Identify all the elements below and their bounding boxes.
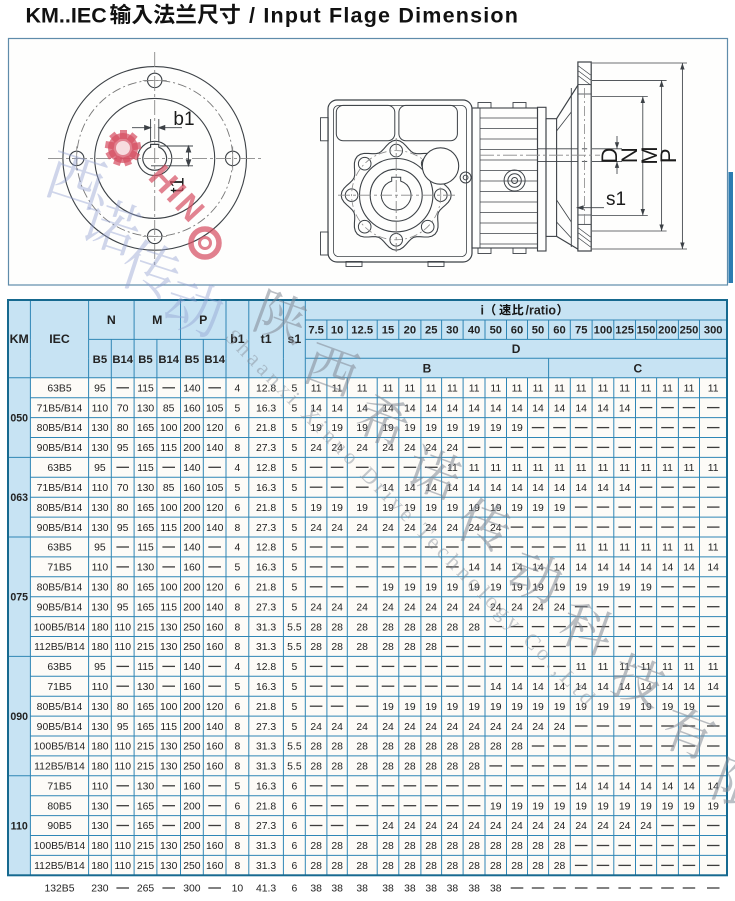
svg-text:6: 6	[292, 821, 298, 832]
svg-text:19: 19	[310, 503, 322, 514]
svg-text:11: 11	[684, 383, 695, 394]
svg-text:24: 24	[554, 722, 566, 733]
svg-text:112B5/B14: 112B5/B14	[34, 861, 85, 872]
svg-text:28: 28	[447, 861, 459, 872]
svg-text:24: 24	[447, 443, 459, 454]
svg-text:100: 100	[594, 325, 613, 337]
svg-text:31.3: 31.3	[256, 841, 276, 852]
svg-text:24: 24	[447, 722, 459, 733]
svg-text:110: 110	[114, 762, 131, 773]
svg-text:24: 24	[597, 821, 609, 832]
svg-text:28: 28	[310, 742, 322, 753]
svg-text:B5: B5	[138, 354, 152, 366]
svg-text:38: 38	[490, 884, 502, 895]
svg-text:140: 140	[183, 662, 201, 673]
svg-text:105: 105	[206, 403, 224, 414]
svg-text:19: 19	[425, 583, 437, 594]
svg-text:14: 14	[683, 782, 695, 793]
svg-text:11: 11	[708, 463, 719, 474]
svg-text:60: 60	[553, 325, 565, 337]
svg-text:24: 24	[356, 602, 368, 613]
svg-text:4: 4	[235, 383, 241, 394]
svg-text:130: 130	[160, 762, 178, 773]
svg-text:5: 5	[235, 682, 241, 693]
svg-text:115: 115	[160, 443, 177, 454]
svg-text:5: 5	[292, 722, 298, 733]
svg-text:14: 14	[640, 563, 652, 574]
svg-text:100B5/B14: 100B5/B14	[34, 622, 86, 633]
svg-text:19: 19	[511, 503, 523, 514]
svg-text:6: 6	[292, 884, 298, 895]
svg-text:11: 11	[469, 463, 480, 474]
svg-text:5: 5	[292, 463, 298, 474]
svg-text:6: 6	[235, 801, 241, 812]
svg-text:12.8: 12.8	[256, 543, 276, 554]
svg-text:71B5/B14: 71B5/B14	[37, 483, 83, 494]
svg-text:15: 15	[382, 325, 394, 337]
svg-text:19: 19	[382, 583, 394, 594]
svg-text:24: 24	[382, 523, 394, 534]
svg-text:D: D	[512, 342, 521, 356]
svg-text:115: 115	[137, 383, 154, 394]
svg-text:4: 4	[235, 543, 241, 554]
svg-text:115: 115	[137, 543, 154, 554]
svg-text:28: 28	[356, 861, 368, 872]
svg-text:19: 19	[511, 702, 523, 713]
svg-text:24: 24	[532, 821, 544, 832]
svg-text:120: 120	[206, 583, 224, 594]
svg-text:19: 19	[597, 801, 609, 812]
svg-text:14: 14	[707, 563, 719, 574]
svg-text:14: 14	[597, 563, 609, 574]
svg-text:8: 8	[235, 861, 241, 872]
svg-text:11: 11	[708, 383, 719, 394]
svg-text:28: 28	[468, 762, 480, 773]
svg-text:12.8: 12.8	[256, 662, 276, 673]
svg-text:14: 14	[575, 403, 587, 414]
svg-text:130: 130	[91, 503, 109, 514]
svg-text:38: 38	[310, 884, 322, 895]
svg-text:28: 28	[532, 841, 544, 852]
svg-text:11: 11	[469, 383, 480, 394]
svg-text:24: 24	[511, 821, 523, 832]
svg-text:11: 11	[619, 383, 630, 394]
svg-text:28: 28	[310, 861, 322, 872]
svg-text:300: 300	[704, 325, 723, 337]
svg-text:5: 5	[292, 443, 298, 454]
svg-text:12.5: 12.5	[351, 325, 373, 337]
svg-text:19: 19	[447, 503, 459, 514]
svg-text:IEC: IEC	[49, 332, 70, 346]
svg-text:11: 11	[662, 662, 673, 673]
svg-text:6: 6	[235, 583, 241, 594]
svg-text:14: 14	[511, 682, 523, 693]
svg-text:14: 14	[331, 403, 343, 414]
svg-text:165: 165	[137, 702, 155, 713]
svg-text:19: 19	[425, 702, 437, 713]
svg-text:165: 165	[137, 583, 155, 594]
svg-text:19: 19	[447, 423, 459, 434]
svg-text:215: 215	[137, 762, 155, 773]
svg-text:31.3: 31.3	[256, 642, 276, 653]
svg-text:80: 80	[117, 423, 129, 434]
svg-text:24: 24	[640, 821, 652, 832]
svg-text:130: 130	[91, 443, 109, 454]
svg-text:19: 19	[683, 801, 695, 812]
svg-text:8: 8	[235, 642, 241, 653]
svg-text:19: 19	[619, 702, 631, 713]
svg-text:27.3: 27.3	[256, 523, 276, 534]
svg-text:130: 130	[91, 602, 109, 613]
svg-text:24: 24	[425, 722, 437, 733]
svg-text:14: 14	[490, 483, 502, 494]
svg-text:14: 14	[468, 483, 480, 494]
svg-text:100B5/B14: 100B5/B14	[34, 742, 86, 753]
svg-text:130: 130	[160, 861, 178, 872]
svg-text:28: 28	[425, 742, 437, 753]
svg-text:14: 14	[640, 782, 652, 793]
svg-text:KM: KM	[10, 332, 29, 346]
svg-text:19: 19	[619, 801, 631, 812]
svg-text:200: 200	[183, 821, 201, 832]
svg-text:5.5: 5.5	[287, 642, 302, 653]
svg-text:6: 6	[235, 503, 241, 514]
svg-text:110: 110	[114, 742, 131, 753]
svg-text:8: 8	[235, 722, 241, 733]
svg-text:28: 28	[356, 742, 368, 753]
svg-text:11: 11	[684, 463, 695, 474]
svg-text:14: 14	[619, 403, 631, 414]
svg-text:215: 215	[137, 861, 155, 872]
svg-text:24: 24	[425, 602, 437, 613]
svg-text:63B5: 63B5	[47, 662, 71, 673]
svg-text:160: 160	[206, 861, 224, 872]
svg-text:11: 11	[426, 383, 437, 394]
svg-text:11: 11	[598, 463, 609, 474]
svg-text:215: 215	[137, 642, 155, 653]
svg-text:8: 8	[235, 523, 241, 534]
svg-text:38: 38	[382, 884, 394, 895]
svg-text:28: 28	[404, 841, 416, 852]
svg-text:71B5: 71B5	[47, 682, 71, 693]
svg-text:28: 28	[490, 841, 502, 852]
svg-text:28: 28	[532, 861, 544, 872]
svg-text:12.8: 12.8	[256, 463, 276, 474]
svg-text:28: 28	[310, 622, 322, 633]
svg-text:14: 14	[532, 483, 544, 494]
svg-text:14: 14	[490, 682, 502, 693]
svg-text:24: 24	[447, 523, 459, 534]
svg-text:19: 19	[662, 801, 674, 812]
svg-text:B14: B14	[112, 354, 133, 366]
svg-text:s1: s1	[606, 189, 626, 210]
svg-text:19: 19	[575, 583, 587, 594]
svg-text:40: 40	[468, 325, 480, 337]
svg-text:24: 24	[404, 821, 416, 832]
svg-text:19: 19	[707, 801, 719, 812]
svg-text:90B5/B14: 90B5/B14	[37, 722, 83, 733]
svg-text:120: 120	[206, 423, 224, 434]
svg-text:28: 28	[404, 861, 416, 872]
svg-text:6: 6	[235, 423, 241, 434]
svg-text:112B5/B14: 112B5/B14	[34, 762, 85, 773]
svg-text:11: 11	[662, 543, 673, 554]
svg-text:165: 165	[137, 523, 155, 534]
svg-text:28: 28	[331, 642, 343, 653]
svg-text:11: 11	[708, 662, 719, 673]
svg-text:28: 28	[356, 642, 368, 653]
svg-text:100: 100	[160, 423, 178, 434]
svg-text:100B5/B14: 100B5/B14	[34, 841, 86, 852]
svg-text:31.3: 31.3	[256, 622, 276, 633]
svg-text:28: 28	[382, 762, 394, 773]
svg-text:28: 28	[404, 762, 416, 773]
svg-text:140: 140	[206, 523, 224, 534]
svg-text:180: 180	[91, 622, 109, 633]
svg-text:160: 160	[183, 563, 201, 574]
svg-text:24: 24	[331, 602, 343, 613]
svg-text:28: 28	[447, 742, 459, 753]
svg-text:165: 165	[137, 602, 155, 613]
svg-text:14: 14	[575, 563, 587, 574]
svg-text:14: 14	[662, 682, 674, 693]
svg-text:11: 11	[447, 383, 458, 394]
svg-text:27.3: 27.3	[256, 722, 276, 733]
svg-text:160: 160	[206, 642, 224, 653]
svg-text:24: 24	[404, 443, 416, 454]
svg-text:105: 105	[206, 483, 224, 494]
svg-text:115: 115	[160, 602, 177, 613]
svg-text:38: 38	[447, 884, 459, 895]
svg-text:14: 14	[511, 403, 523, 414]
svg-text:19: 19	[554, 503, 566, 514]
svg-text:28: 28	[468, 742, 480, 753]
svg-text:19: 19	[532, 503, 544, 514]
svg-text:19: 19	[468, 423, 480, 434]
svg-text:19: 19	[425, 503, 437, 514]
svg-text:11: 11	[533, 383, 544, 394]
svg-text:160: 160	[206, 762, 224, 773]
svg-text:11: 11	[554, 383, 565, 394]
svg-text:165: 165	[137, 503, 155, 514]
svg-text:N: N	[107, 313, 116, 327]
svg-text:14: 14	[662, 782, 674, 793]
svg-text:160: 160	[183, 782, 201, 793]
svg-text:21.8: 21.8	[256, 503, 276, 514]
svg-text:38: 38	[331, 884, 343, 895]
svg-text:140: 140	[183, 383, 201, 394]
svg-text:8: 8	[235, 742, 241, 753]
svg-text:24: 24	[575, 821, 587, 832]
svg-text:24: 24	[382, 821, 394, 832]
svg-text:b1: b1	[173, 109, 194, 130]
svg-text:14: 14	[619, 483, 631, 494]
svg-text:8: 8	[235, 821, 241, 832]
svg-text:24: 24	[382, 602, 394, 613]
svg-text:11: 11	[598, 543, 609, 554]
svg-text:11: 11	[641, 543, 652, 554]
svg-text:27.3: 27.3	[256, 821, 276, 832]
svg-text:4: 4	[235, 463, 241, 474]
svg-text:28: 28	[310, 841, 322, 852]
svg-text:28: 28	[404, 742, 416, 753]
svg-text:11: 11	[684, 662, 695, 673]
svg-text:165: 165	[137, 801, 155, 812]
svg-text:115: 115	[137, 463, 154, 474]
svg-text:M: M	[152, 313, 162, 327]
svg-text:28: 28	[310, 762, 322, 773]
svg-text:24: 24	[331, 722, 343, 733]
svg-text:28: 28	[331, 762, 343, 773]
svg-text:38: 38	[404, 884, 416, 895]
svg-text:28: 28	[425, 841, 437, 852]
svg-text:24: 24	[468, 722, 480, 733]
svg-text:70: 70	[117, 403, 129, 414]
svg-text:28: 28	[331, 622, 343, 633]
svg-text:P: P	[656, 148, 681, 163]
svg-text:28: 28	[310, 642, 322, 653]
svg-text:63B5: 63B5	[47, 383, 71, 394]
svg-text:5: 5	[292, 523, 298, 534]
svg-text:5.5: 5.5	[287, 622, 302, 633]
svg-text:130: 130	[160, 642, 178, 653]
svg-text:180: 180	[91, 762, 109, 773]
svg-text:28: 28	[382, 861, 394, 872]
svg-text:28: 28	[331, 841, 343, 852]
svg-text:5: 5	[292, 583, 298, 594]
svg-text:80B5: 80B5	[47, 801, 71, 812]
svg-text:5.5: 5.5	[287, 762, 302, 773]
svg-text:180: 180	[91, 742, 109, 753]
svg-text:24: 24	[490, 821, 502, 832]
svg-text:11: 11	[490, 463, 501, 474]
svg-text:14: 14	[683, 682, 695, 693]
svg-text:11: 11	[662, 463, 673, 474]
svg-text:130: 130	[91, 801, 109, 812]
svg-text:250: 250	[680, 325, 699, 337]
svg-text:24: 24	[404, 722, 416, 733]
svg-text:14: 14	[511, 483, 523, 494]
svg-text:60: 60	[511, 325, 523, 337]
svg-text:130: 130	[160, 841, 178, 852]
svg-text:24: 24	[356, 523, 368, 534]
svg-text:41.3: 41.3	[256, 884, 276, 895]
svg-text:130: 130	[91, 702, 109, 713]
svg-text:19: 19	[640, 583, 652, 594]
svg-text:200: 200	[183, 801, 201, 812]
svg-text:4: 4	[235, 662, 241, 673]
svg-text:19: 19	[331, 503, 343, 514]
svg-text:130: 130	[137, 403, 155, 414]
svg-text:5: 5	[292, 602, 298, 613]
svg-text:19: 19	[447, 702, 459, 713]
svg-text:130: 130	[137, 563, 155, 574]
svg-text:28: 28	[404, 642, 416, 653]
svg-text:200: 200	[183, 443, 201, 454]
svg-text:B14: B14	[158, 354, 179, 366]
svg-text:24: 24	[554, 821, 566, 832]
svg-text:250: 250	[183, 841, 201, 852]
svg-text:31.3: 31.3	[256, 742, 276, 753]
svg-text:130: 130	[91, 821, 109, 832]
svg-text:28: 28	[490, 742, 502, 753]
svg-text:70: 70	[117, 483, 129, 494]
svg-text:5: 5	[235, 483, 241, 494]
svg-text:19: 19	[597, 583, 609, 594]
svg-text:120: 120	[206, 702, 224, 713]
svg-text:130: 130	[91, 523, 109, 534]
svg-text:10: 10	[331, 325, 343, 337]
svg-text:24: 24	[310, 722, 322, 733]
svg-text:11: 11	[576, 463, 587, 474]
svg-text:5: 5	[235, 782, 241, 793]
svg-text:8: 8	[235, 622, 241, 633]
svg-text:5: 5	[235, 563, 241, 574]
svg-text:11: 11	[490, 383, 501, 394]
svg-text:25: 25	[425, 325, 437, 337]
svg-text:110: 110	[92, 483, 109, 494]
svg-text:28: 28	[382, 742, 394, 753]
svg-text:24: 24	[532, 722, 544, 733]
svg-text:28: 28	[447, 622, 459, 633]
svg-text:11: 11	[357, 383, 368, 394]
svg-text:16.3: 16.3	[256, 483, 276, 494]
svg-text:180: 180	[91, 642, 109, 653]
svg-text:11: 11	[708, 543, 719, 554]
svg-text:80B5/B14: 80B5/B14	[37, 423, 83, 434]
svg-text:14: 14	[683, 563, 695, 574]
svg-text:200: 200	[183, 583, 201, 594]
svg-text:180: 180	[91, 841, 109, 852]
svg-text:11: 11	[576, 383, 587, 394]
svg-text:11: 11	[554, 463, 565, 474]
svg-text:90B5/B14: 90B5/B14	[37, 523, 83, 534]
svg-text:24: 24	[331, 523, 343, 534]
svg-text:80B5/B14: 80B5/B14	[37, 503, 83, 514]
svg-text:i: i	[481, 303, 484, 317]
svg-text:11: 11	[311, 383, 322, 394]
svg-text:11: 11	[662, 383, 673, 394]
svg-text:50: 50	[490, 325, 502, 337]
svg-text:120: 120	[206, 503, 224, 514]
svg-text:21.8: 21.8	[256, 702, 276, 713]
svg-text:16.3: 16.3	[256, 403, 276, 414]
svg-text:/ratio: /ratio	[526, 303, 557, 317]
svg-text:14: 14	[532, 403, 544, 414]
svg-text:28: 28	[468, 841, 480, 852]
svg-text:14: 14	[597, 782, 609, 793]
svg-text:100: 100	[160, 583, 178, 594]
svg-text:11: 11	[576, 543, 587, 554]
svg-text:165: 165	[137, 821, 155, 832]
svg-text:28: 28	[425, 622, 437, 633]
svg-text:110: 110	[92, 682, 109, 693]
svg-text:28: 28	[382, 642, 394, 653]
svg-text:300: 300	[183, 884, 201, 895]
svg-text:24: 24	[468, 602, 480, 613]
svg-text:24: 24	[619, 821, 631, 832]
svg-text:200: 200	[183, 702, 201, 713]
svg-text:/ Input Flage Dimension: / Input Flage Dimension	[249, 3, 519, 27]
svg-text:19: 19	[532, 702, 544, 713]
svg-text:130: 130	[137, 682, 155, 693]
svg-text:11: 11	[619, 463, 630, 474]
svg-text:150: 150	[637, 325, 656, 337]
svg-text:110: 110	[114, 642, 131, 653]
svg-text:250: 250	[183, 742, 201, 753]
svg-text:125: 125	[615, 325, 634, 337]
svg-text:075: 075	[10, 592, 28, 604]
